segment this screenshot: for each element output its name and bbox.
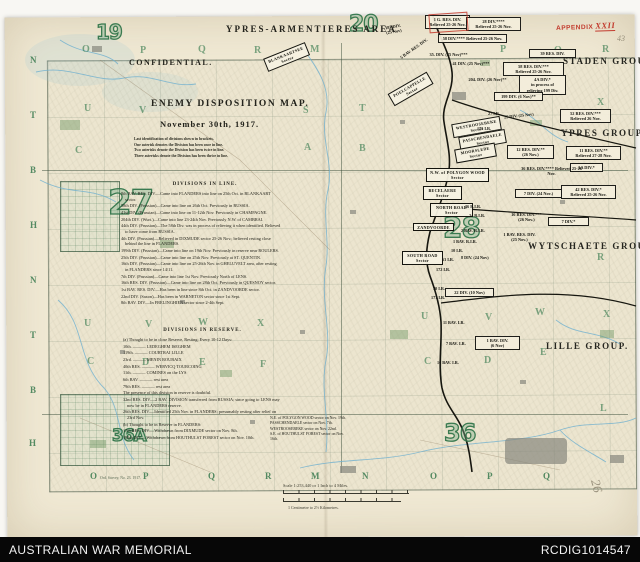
division-in-line-entry: 41st DIV. (Prussian)—Came into line on 1… (121, 210, 281, 216)
pencil-number-top-right: 43 (617, 34, 625, 43)
map-title: ENEMY DISPOSITION MAP. (151, 99, 309, 109)
reserve-notes-block: N.E. of POLYGON WOOD sector on Nov. 19th… (270, 416, 350, 442)
sheet-boundary-horizontal-1 (42, 170, 628, 171)
division-in-line-entry: 44th DIV. (Prussian)—The 58th Div. was i… (121, 223, 281, 234)
survey-note: Ord. Survey, No. 23. 1917. (100, 476, 141, 480)
scale-title: Scale 1:253,440 or 1 Inch to 4 Miles. (283, 483, 348, 488)
archive-item-id: RCDIG1014547 (541, 543, 631, 557)
division-in-line-entry: 16th RES. DIV. (Prussian)—Came into line… (121, 280, 281, 286)
divisions-in-reserve-heading: DIVISIONS IN RESERVE. (150, 328, 255, 333)
division-in-reserve-entry: 119th. ——— COURTRAI LILLE (123, 350, 281, 356)
sheet-boundary-vertical (341, 43, 342, 473)
division-in-line-entry: 8th BAV. RES. DIV.—Came into FLANDERS in… (121, 191, 281, 202)
division-in-reserve-entry: 6th BAV. ——— rest area (123, 377, 281, 383)
scale-bar-miles (283, 490, 409, 494)
scale-bar-km (283, 498, 401, 502)
map-area-title: YPRES-ARMENTIERES AREA (226, 24, 397, 34)
division-in-reserve-entry: (b) Thought to be in Reserve in FLANDERS… (123, 422, 281, 428)
division-in-reserve-entry: 10th. ——— LEDEGHEM ISEGHEM (123, 344, 281, 350)
division-in-reserve-entry: 11th. ——— COMINES on the LYS (123, 370, 281, 376)
index-grid-upper (60, 181, 120, 252)
divisions-in-line-heading: DIVISIONS IN LINE. (160, 182, 250, 187)
archive-institution-label: AUSTRALIAN WAR MEMORIAL (9, 543, 192, 557)
division-in-reserve-entry: 26th RES. DIV.—Identified 25th Nov. in F… (123, 409, 281, 420)
division-in-reserve-entry: 23rd. ——— MENIN ROUBAIX (123, 357, 281, 363)
division-in-reserve-entry: (a) Thought to be in close Reserve, Rest… (123, 337, 281, 343)
divisions-in-line-entries: 8th BAV. RES. DIV.—Came into FLANDERS in… (121, 191, 281, 307)
archive-caption-bar: AUSTRALIAN WAR MEMORIAL RCDIG1014547 (0, 537, 640, 562)
division-in-line-entry: 1st BAV. RES. DIV.—Has been in line sinc… (121, 287, 281, 293)
legend-notes: Last identification of divisions shewn i… (134, 137, 252, 160)
appendix-stamp-number: XXII (595, 20, 615, 32)
scanned-map-page: OPQRMPQRUVSTXCABUVWXUVWXCDEFCDERL NTBHNT… (0, 0, 640, 562)
divisions-in-line-block: DIVISIONS IN LINE. (160, 182, 250, 187)
division-in-reserve-entry: 40th RES. ——— WERVICQ TOURCOING (123, 364, 281, 370)
confidential-marking: CONFIDENTIAL. (129, 58, 213, 67)
divisions-in-reserve-block: DIVISIONS IN RESERVE. (150, 328, 255, 333)
red-stamp-box (428, 12, 468, 34)
appendix-stamp-label: APPENDIX (556, 24, 593, 32)
division-in-line-entry: 22nd DIV. (Saxon)—Has been in WARNETON s… (121, 294, 281, 300)
division-in-reserve-entry: 17th RES. DIV.—Withdrawn from DIXMUDE se… (123, 428, 281, 434)
reserve-note: S.E. of HOUTHULST FOREST sector on Nov. … (270, 432, 350, 443)
division-in-line-entry: 199th DIV. (Prussian)—Came into line on … (121, 248, 281, 254)
division-in-reserve-entry: 79th RES. ——— rest area (123, 384, 281, 390)
division-in-reserve-entry: The presence of this division in reserve… (123, 390, 281, 396)
division-in-reserve-entry: 32nd RES. DIV.—2 BAV. DIVISION transferr… (123, 397, 281, 408)
division-in-line-entry: 4th DIV. (Prussian)—Relieved in DIXMUDE … (121, 236, 281, 247)
legend-line: Three asterisks denote the Division has … (134, 154, 252, 160)
divisions-in-reserve-entries: (a) Thought to be in close Reserve, Rest… (123, 337, 281, 442)
map-date: November 30th, 1917. (160, 119, 259, 129)
division-in-line-entry: 204th DIV. (Wurt.)—Came into line 23-24t… (121, 217, 281, 223)
division-in-reserve-entry: 195th DIV.—Withdrawn from HOUTHULST FORE… (123, 435, 281, 441)
appendix-stamp: APPENDIXXXII (556, 20, 616, 32)
division-in-line-entry: 8th BAV. DIV.—In FRELINGHIEN sector sinc… (121, 300, 281, 306)
division-in-line-entry: 25th DIV. (Prussian)—Came into line on 2… (121, 255, 281, 261)
division-in-line-entry: 16th DIV. (Prussian)—Came into line on 2… (121, 261, 281, 272)
division-in-line-entry: 58th DIV. (Prussian)—Came into line on 2… (121, 203, 281, 209)
scale-metric-note: 1 Centimetre to 2½ Kilometres. (288, 505, 339, 510)
division-in-line-entry: 7th DIV. (Prussian)—Came into line 1st N… (121, 274, 281, 280)
